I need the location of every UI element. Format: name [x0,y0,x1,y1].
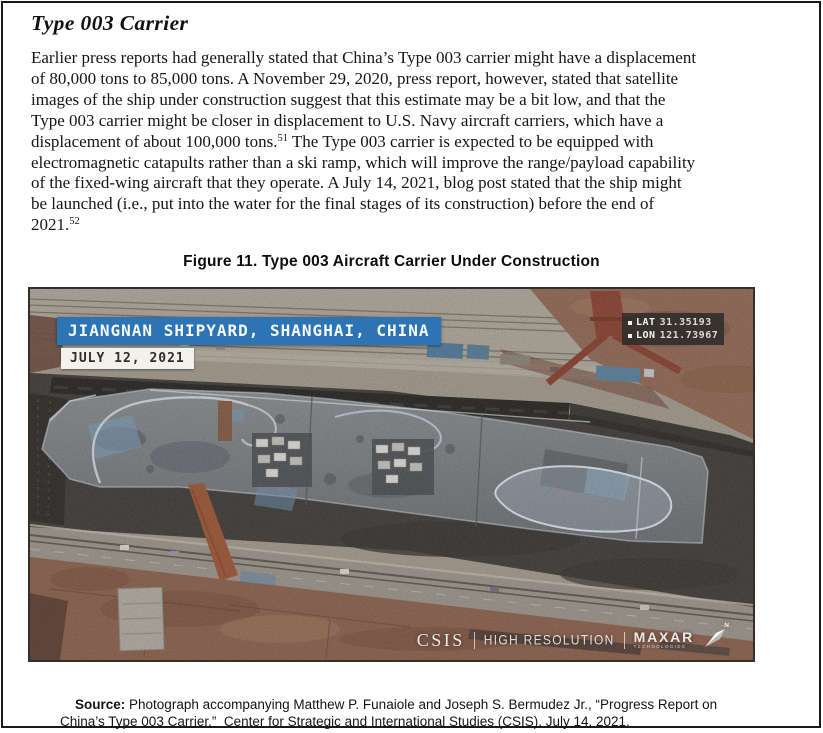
watermark-divider [624,632,625,649]
latitude-row: LAT 31.35193 [628,316,718,329]
footnote-reference: 51 [277,133,288,144]
coordinates-box: LAT 31.35193 LON 121.73967 [622,313,724,345]
date-label: JULY 12, 2021 [61,348,194,369]
maxar-logo: MAXAR TECHNOLOGIES [634,630,694,650]
lat-value: 31.35193 [660,316,712,329]
lon-value: 121.73967 [660,329,719,342]
source-text: Photograph accompanying Matthew P. Funai… [60,697,717,730]
csis-logo: CSIS [417,630,465,651]
image-watermark: CSIS HIGH RESOLUTION MAXAR TECHNOLOGIES … [417,628,729,652]
report-page: Type 003 Carrier Earlier press reports h… [0,0,823,733]
body-paragraph: Earlier press reports had generally stat… [31,48,806,236]
figure-caption: Figure 11. Type 003 Aircraft Carrier Und… [28,253,755,271]
source-note: Source: Photograph accompanying Matthew … [60,678,780,733]
longitude-row: LON 121.73967 [628,329,718,342]
lon-label: LON [636,329,656,342]
bullet-icon [628,334,632,338]
lat-label: LAT [636,316,656,329]
resolution-label: HIGH RESOLUTION [484,632,615,648]
satellite-figure: JIANGNAN SHIPYARD, SHANGHAI, CHINA JULY … [28,287,755,662]
north-arrow-icon: N [703,625,729,649]
source-label: Source: [75,697,125,712]
section-heading: Type 003 Carrier [31,11,188,36]
footnote-reference: 52 [69,216,80,227]
north-label: N [724,622,729,629]
watermark-divider [474,632,475,649]
bullet-icon [628,321,632,325]
location-banner: JIANGNAN SHIPYARD, SHANGHAI, CHINA [57,317,441,345]
